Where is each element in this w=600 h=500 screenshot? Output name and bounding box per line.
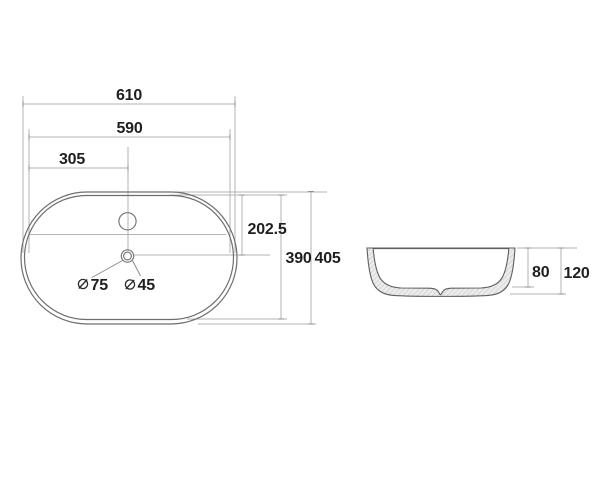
side-view: 80 120 bbox=[367, 248, 590, 296]
top-view: 75 45 610 590 305 202.5 390 405 bbox=[21, 87, 341, 324]
bowl-depth-label: 80 bbox=[532, 264, 550, 281]
diameter-icon bbox=[125, 280, 134, 289]
overall-width-label: 610 bbox=[116, 87, 142, 104]
dimension-lines bbox=[23, 101, 314, 324]
center-offset-label: 305 bbox=[59, 151, 85, 168]
inner-width-label: 590 bbox=[116, 120, 142, 137]
drain-recess-diameter-label: 75 bbox=[91, 277, 109, 294]
drain-recess-callout: 75 bbox=[78, 277, 108, 294]
basin-section-profile bbox=[367, 248, 515, 296]
drawing-canvas: 75 45 610 590 305 202.5 390 405 bbox=[0, 0, 600, 500]
overall-height-label: 120 bbox=[564, 265, 590, 282]
overall-depth-label: 405 bbox=[315, 250, 341, 267]
rim-outer-edge bbox=[21, 192, 237, 324]
drain-hole bbox=[124, 252, 132, 260]
basin-plan-outline bbox=[21, 192, 237, 324]
leader-lines bbox=[92, 261, 141, 278]
technical-drawing: 75 45 610 590 305 202.5 390 405 bbox=[0, 0, 600, 500]
rim-inner-edge bbox=[25, 196, 234, 320]
top-to-drain-label: 202.5 bbox=[248, 221, 287, 238]
diameter-icon bbox=[78, 279, 87, 288]
drain-hole-callout: 45 bbox=[125, 277, 155, 294]
drain-hole-diameter-label: 45 bbox=[138, 277, 156, 294]
inner-depth-label: 390 bbox=[286, 250, 312, 267]
